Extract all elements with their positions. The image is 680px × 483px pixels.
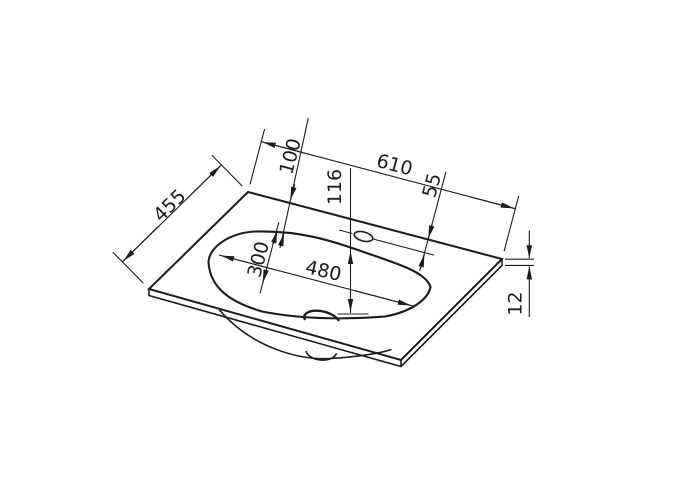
tap-hole bbox=[353, 230, 374, 244]
dim-455-label: 455 bbox=[149, 185, 190, 226]
dim-455-extension-lines bbox=[113, 155, 243, 283]
dim-455-arrow-bottom bbox=[123, 227, 158, 261]
dim-55-arrow-upper bbox=[428, 225, 432, 239]
dim-12-label: 12 bbox=[505, 291, 527, 315]
technical-drawing-page: 610 455 100 116 55 480 bbox=[0, 0, 680, 483]
dim-100-label: 100 bbox=[275, 136, 306, 177]
basin bbox=[209, 230, 435, 360]
dim-12-ticks bbox=[505, 259, 534, 265]
dim-total-depth: 455 bbox=[113, 155, 243, 283]
dim-tap-from-back: 55 bbox=[418, 171, 445, 271]
dim-300-label: 300 bbox=[243, 239, 274, 280]
dim-455-arrow-top bbox=[186, 166, 220, 200]
dim-610-arrow-right bbox=[470, 197, 514, 209]
dim-55-label: 55 bbox=[418, 171, 445, 200]
dim-100-arrow-upper bbox=[291, 184, 295, 200]
dim-480-label: 480 bbox=[303, 256, 343, 286]
dim-edge-to-basin: 100 bbox=[275, 118, 308, 248]
dim-480-arrow-right bbox=[355, 291, 411, 306]
dim-116-label: 116 bbox=[324, 169, 346, 205]
washbasin-countertop-drawing: 610 455 100 116 55 480 bbox=[0, 0, 680, 483]
dim-610-label: 610 bbox=[374, 150, 415, 181]
tap-hole-leader-line bbox=[339, 230, 434, 255]
dim-55-arrow-lower bbox=[421, 254, 425, 267]
dim-thickness: 12 bbox=[505, 231, 535, 318]
drain-hole-arc bbox=[304, 311, 339, 321]
